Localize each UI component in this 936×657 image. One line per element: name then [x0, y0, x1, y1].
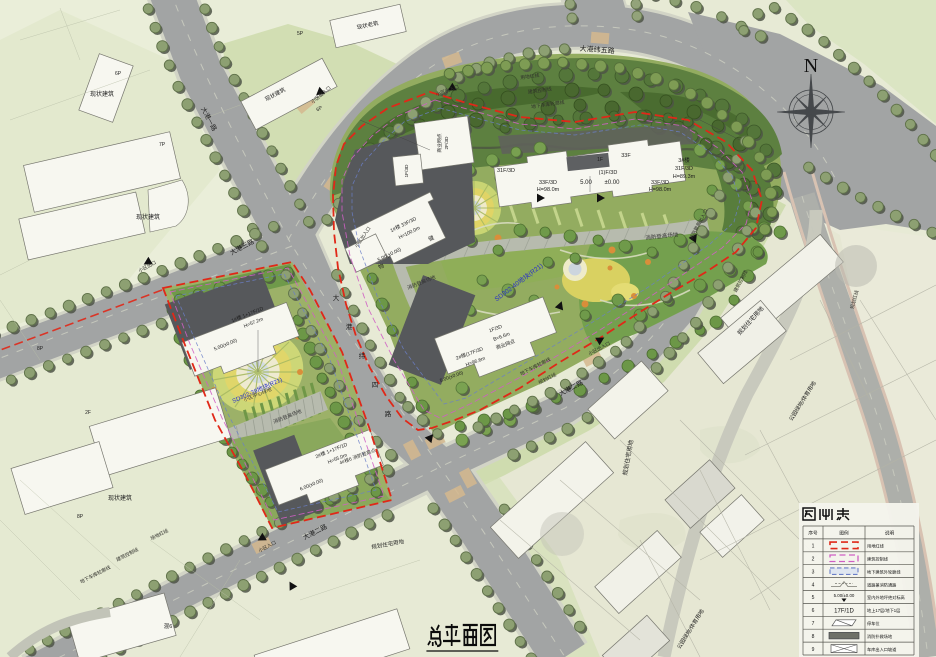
svg-text:图例: 图例 [839, 530, 849, 537]
svg-text:5P: 5P [297, 31, 304, 37]
svg-text:(1)F/3D: (1)F/3D [599, 170, 618, 176]
svg-text:地上17层/地下1层: 地上17层/地下1层 [867, 607, 900, 614]
svg-text:7P: 7P [159, 142, 166, 148]
svg-text:消防扑救场地: 消防扑救场地 [867, 633, 893, 640]
svg-text:四: 四 [372, 381, 379, 389]
svg-text:室内外地坪绝对标高: 室内外地坪绝对标高 [867, 594, 905, 601]
svg-text:2F/3D: 2F/3D [444, 136, 450, 150]
svg-text:4: 4 [812, 582, 815, 588]
svg-text:1F: 1F [597, 157, 603, 163]
svg-text:5.00: 5.00 [580, 180, 592, 186]
svg-text:31F/3D: 31F/3D [497, 168, 515, 174]
svg-text:H=98.0m: H=98.0m [537, 187, 560, 193]
svg-text:1F/3D: 1F/3D [404, 164, 410, 178]
svg-text:序号: 序号 [808, 530, 818, 537]
svg-text:5.00/±0.00: 5.00/±0.00 [834, 593, 855, 598]
svg-text:2: 2 [812, 557, 815, 563]
svg-text:混6: 混6 [164, 622, 173, 630]
svg-text:9: 9 [812, 647, 815, 653]
svg-text:17F/1D: 17F/1D [834, 608, 854, 614]
svg-text:停车位: 停车位 [867, 620, 880, 627]
svg-text:N: N [804, 55, 818, 77]
svg-text:H=98.0m: H=98.0m [649, 187, 672, 193]
svg-text:现状建筑: 现状建筑 [136, 213, 160, 221]
svg-text:商业网点: 商业网点 [436, 133, 443, 152]
svg-text:33F: 33F [621, 153, 631, 159]
svg-text:3#楼: 3#楼 [678, 156, 690, 164]
svg-text:6: 6 [812, 608, 815, 614]
svg-text:33F/3D: 33F/3D [651, 180, 669, 186]
svg-text:3: 3 [812, 569, 815, 575]
svg-text:5: 5 [812, 595, 815, 601]
svg-text:建筑控制线: 建筑控制线 [867, 556, 889, 563]
svg-text:现状建筑: 现状建筑 [90, 90, 114, 98]
svg-text:8P: 8P [77, 514, 84, 520]
svg-text:8: 8 [812, 634, 815, 640]
svg-text:H=89.3m: H=89.3m [673, 174, 696, 180]
svg-text:港: 港 [346, 322, 353, 331]
svg-text:7: 7 [812, 621, 815, 627]
svg-text:±0.00: ±0.00 [605, 180, 621, 186]
svg-text:31F/3D: 31F/3D [675, 166, 693, 172]
svg-text:车库出入口坡道: 车库出入口坡道 [867, 646, 897, 653]
svg-text:纬: 纬 [359, 351, 366, 360]
svg-text:道路兼消防通路: 道路兼消防通路 [867, 581, 897, 588]
svg-text:1: 1 [812, 544, 815, 550]
svg-text:现状建筑: 现状建筑 [108, 494, 132, 502]
svg-text:地下建筑外轮廓线: 地下建筑外轮廓线 [867, 568, 901, 575]
svg-text:说明: 说明 [885, 530, 895, 537]
svg-text:路: 路 [385, 409, 392, 418]
svg-text:大: 大 [333, 293, 340, 302]
svg-text:用地红线: 用地红线 [867, 543, 885, 550]
svg-text:8P: 8P [37, 346, 44, 352]
svg-text:2F: 2F [85, 410, 91, 416]
svg-text:33F/3D: 33F/3D [539, 180, 557, 186]
svg-text:6P: 6P [115, 71, 122, 77]
